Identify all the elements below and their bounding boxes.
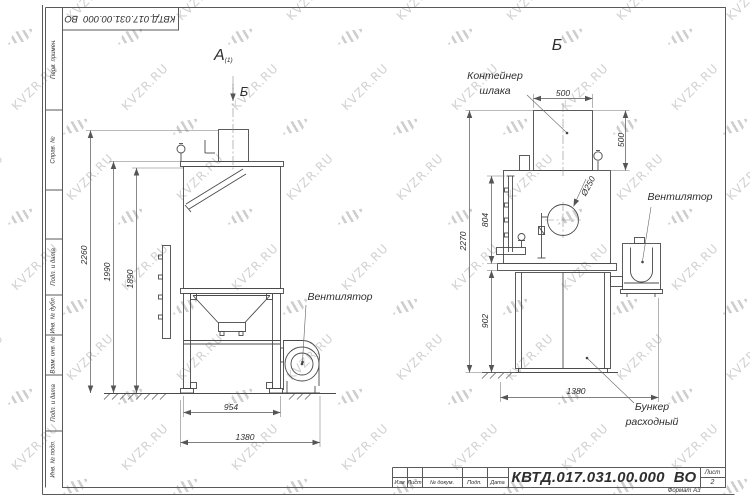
format-label: Формат А3	[645, 487, 723, 495]
dim-width-954: 954	[211, 402, 251, 412]
container-callout-line2: шлака	[460, 85, 530, 97]
title-block-doc-number: КВТД.017.031.00.000 ВО	[508, 467, 700, 488]
right-fan-callout: Вентилятор	[644, 191, 716, 203]
tb-col-podp: Подп.	[462, 479, 487, 488]
frame-field-podp-data-2: Подп. и дата	[45, 375, 62, 431]
ground-lines	[104, 373, 618, 400]
frame-field-vzam-inv: Взам. инв. №	[45, 335, 62, 375]
dim-width-1380-left: 1380	[228, 432, 262, 442]
sheet-number: 2	[700, 477, 725, 487]
tb-col-list: Лист	[407, 479, 422, 488]
frame-field-label: Инв. № подл.	[51, 440, 57, 477]
frame-field-label: Взам. инв. №	[51, 336, 57, 373]
bunker-callout-line2: расходный	[608, 416, 696, 428]
frame-field-podp-data-1: Подп. и дата	[45, 239, 62, 295]
dim-height-1890: 1890	[125, 265, 135, 293]
dim-width-1380-right: 1380	[559, 386, 593, 396]
view-a-letter: А	[214, 47, 225, 65]
frame-field-label: Справ. №	[51, 136, 57, 163]
frame-field-inv-podl: Инв. № подл.	[45, 431, 62, 487]
drawing-sheet: KVZR.RUKVZR.RUKVZR.RUKVZR.RUKVZR.RUKVZR.…	[0, 0, 750, 500]
dim-height-2270: 2270	[458, 227, 468, 255]
frame-field-inv-dubl: Инв. № дубл.	[45, 295, 62, 335]
frame-field-label: Подп. и дата	[51, 384, 57, 422]
view-a-subscript: (1)	[225, 57, 233, 64]
dim-height-2260: 2260	[79, 241, 89, 269]
top-doc-number: КВТД.017.031.00.000 ВО	[62, 8, 178, 30]
dim-height-902: 902	[480, 307, 490, 335]
frame-field-label: Перв. примен.	[51, 39, 57, 79]
container-callout-line1: Контейнер	[460, 70, 530, 82]
centerlines	[233, 76, 581, 238]
dim-container-height-500: 500	[616, 120, 626, 160]
left-view-lines	[159, 130, 321, 394]
view-a-label: А (1)	[214, 46, 233, 66]
frame-field-perv-primen: Перв. примен.	[45, 8, 62, 110]
section-b-label: Б	[237, 84, 251, 98]
dim-container-width-500: 500	[543, 88, 583, 98]
dim-height-804: 804	[480, 206, 490, 234]
right-view-lines	[497, 111, 663, 373]
tb-col-data: Дата	[487, 479, 508, 488]
dim-height-1990: 1990	[102, 258, 112, 286]
tb-col-n-dokum: № докум.	[422, 479, 462, 488]
frame-field-label: Подп. и дата	[51, 248, 57, 286]
view-b-label: Б	[547, 36, 567, 56]
sheet-label: Лист	[700, 468, 725, 477]
frame-field-label: Инв. № дубл.	[51, 297, 57, 334]
tb-col-izm: Изм	[392, 479, 407, 488]
frame-field-sprav-n: Справ. №	[45, 110, 62, 190]
bunker-callout-line1: Бункер	[612, 401, 692, 413]
left-fan-callout: Вентилятор	[304, 291, 376, 303]
